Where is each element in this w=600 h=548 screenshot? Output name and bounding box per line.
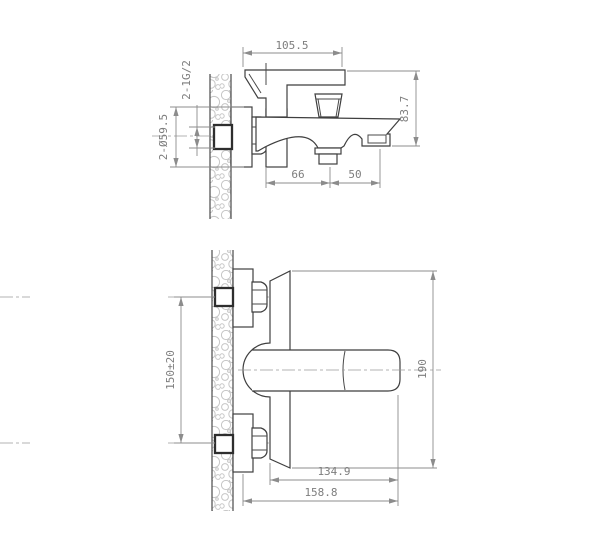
escutcheon-plate-top [233, 269, 253, 327]
dimension-handle-width: 105.5 [243, 39, 342, 67]
plan-view: 150±20 190 134.9 158.8 [0, 250, 441, 511]
dim-text-inlet-spacing: 150±20 [164, 350, 177, 390]
inlet-pipe-fitting [214, 125, 232, 149]
escutcheon-plate-bottom [233, 414, 253, 472]
dim-text-escutcheon-diameter: 2-Ø59.5 [157, 114, 170, 160]
escutcheon-plate [231, 107, 252, 167]
technical-drawing-canvas: 105.5 83.7 66 50 [0, 0, 600, 548]
faucet-dimension-drawing: 105.5 83.7 66 50 [0, 0, 600, 548]
dimension-overall-depth: 158.8 [243, 474, 398, 506]
dimension-inlet-spacing: 150±20 [164, 297, 215, 443]
inlet-pipe-bottom [215, 435, 233, 453]
dim-text-overall-height: 190 [416, 359, 429, 379]
hex-nut-top [252, 282, 267, 312]
diverter-knob [315, 94, 342, 117]
side-view: 105.5 83.7 66 50 [152, 39, 420, 219]
dim-text-overall-depth: 158.8 [304, 486, 337, 499]
dim-text-thread-spec: 2-1G/2 [180, 60, 193, 100]
inlet-pipe-top [215, 288, 233, 306]
dim-text-body-height: 83.7 [398, 96, 411, 123]
hex-nut-bottom [252, 428, 267, 458]
dim-text-handle-reach: 134.9 [317, 465, 350, 478]
dim-text-outlet-offset: 50 [348, 168, 361, 181]
aerator [315, 148, 341, 164]
handle-plan [252, 350, 400, 391]
dim-text-spout-offset: 66 [291, 168, 304, 181]
dim-text-handle-width: 105.5 [275, 39, 308, 52]
